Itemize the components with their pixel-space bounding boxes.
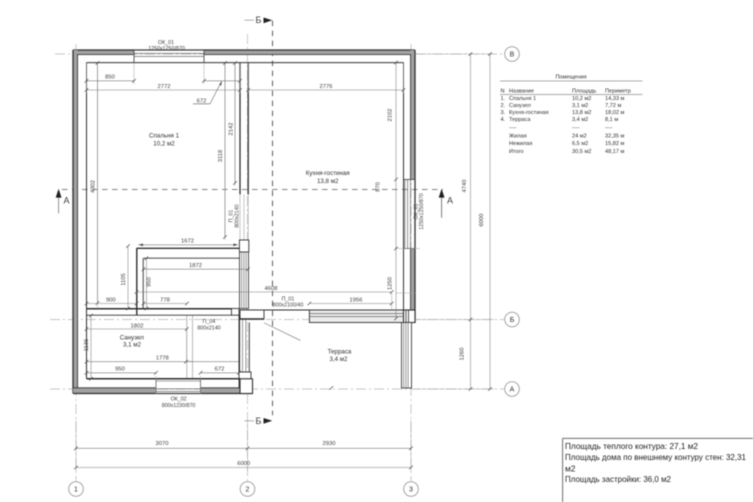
svg-text:672: 672 [197, 99, 207, 105]
svg-text:1.: 1. [501, 96, 506, 102]
svg-text:14,33 м: 14,33 м [605, 96, 625, 102]
svg-text:2776: 2776 [320, 84, 333, 90]
svg-text:1136: 1136 [84, 339, 90, 351]
svg-text:1956: 1956 [350, 298, 363, 304]
svg-text:1260: 1260 [459, 348, 465, 361]
svg-text:672: 672 [215, 367, 225, 373]
svg-text:Санузел: Санузел [509, 103, 531, 109]
svg-text:800х2100/40: 800х2100/40 [273, 303, 304, 309]
svg-text:800х2140: 800х2140 [197, 326, 220, 332]
svg-text:4.: 4. [501, 117, 506, 123]
svg-text:1672: 1672 [181, 239, 194, 245]
svg-text:4608: 4608 [265, 286, 278, 292]
svg-text:15,82 м: 15,82 м [605, 141, 625, 147]
svg-text:900: 900 [106, 297, 116, 303]
svg-text:13,8 м2: 13,8 м2 [572, 110, 591, 116]
svg-text:6000: 6000 [479, 214, 485, 227]
svg-text:3118: 3118 [218, 150, 224, 162]
svg-text:950: 950 [147, 277, 153, 287]
svg-text:Площадь теплого контура: 27,1: Площадь теплого контура: 27,1 м2 [565, 441, 698, 451]
svg-text:Итого: Итого [509, 149, 524, 155]
svg-text:2102: 2102 [388, 109, 394, 122]
svg-text:П_04: П_04 [203, 319, 216, 325]
svg-text:Кухня-гостиная: Кухня-гостиная [306, 170, 350, 177]
svg-text:Кухня-гостиная: Кухня-гостиная [509, 110, 549, 116]
svg-text:Название: Название [509, 89, 534, 95]
svg-text:2142: 2142 [229, 123, 235, 136]
svg-text:4740: 4740 [462, 180, 468, 193]
svg-text:2: 2 [246, 487, 250, 494]
svg-text:8,1 м: 8,1 м [605, 117, 618, 123]
svg-text:3.: 3. [501, 110, 506, 116]
svg-text:3,4 м2: 3,4 м2 [572, 117, 588, 123]
svg-text:32,35 м: 32,35 м [605, 133, 625, 139]
svg-text:Площадь: Площадь [572, 89, 596, 95]
svg-text:870: 870 [375, 182, 381, 192]
svg-text:3,1 м2: 3,1 м2 [123, 341, 142, 348]
svg-text:Спальня 1: Спальня 1 [149, 133, 180, 140]
svg-text:----: ---- [572, 125, 580, 131]
svg-text:2930: 2930 [323, 441, 336, 447]
svg-text:Помещения: Помещения [556, 75, 587, 81]
svg-text:13,8 м2: 13,8 м2 [317, 178, 339, 185]
svg-text:Б: Б [256, 416, 262, 426]
svg-text:Спальня 1: Спальня 1 [509, 96, 536, 102]
svg-text:----: ---- [509, 125, 517, 131]
svg-text:А: А [63, 195, 69, 205]
svg-text:3,1 м2: 3,1 м2 [572, 103, 588, 109]
svg-text:1250: 1250 [388, 277, 394, 290]
svg-text:3070: 3070 [156, 441, 169, 447]
svg-text:1250х1250/870: 1250х1250/870 [148, 46, 185, 52]
svg-text:Терраса: Терраса [328, 349, 352, 356]
svg-text:778: 778 [160, 297, 170, 303]
svg-text:2.: 2. [501, 103, 506, 109]
svg-text:3,4 м2: 3,4 м2 [329, 356, 348, 363]
svg-text:1250х1250/870: 1250х1250/870 [419, 193, 425, 230]
svg-text:1872: 1872 [189, 263, 202, 269]
svg-text:48,17 м: 48,17 м [605, 149, 625, 155]
svg-text:Терраса: Терраса [509, 117, 531, 123]
svg-text:Периметр: Периметр [605, 89, 631, 95]
svg-text:А: А [447, 195, 453, 205]
svg-text:30,5 м2: 30,5 м2 [572, 149, 591, 155]
svg-text:2772: 2772 [158, 84, 171, 90]
svg-text:Жилая: Жилая [509, 133, 527, 139]
svg-text:Нежилая: Нежилая [509, 141, 532, 147]
svg-text:950: 950 [115, 367, 125, 373]
svg-text:Площадь дома по внешнему конту: Площадь дома по внешнему контуру стен: 3… [565, 452, 746, 462]
svg-text:В: В [510, 52, 515, 59]
svg-text:24 м2: 24 м2 [572, 133, 587, 139]
svg-text:18,02 м: 18,02 м [605, 110, 625, 116]
svg-text:10,2 м2: 10,2 м2 [153, 141, 175, 148]
svg-text:1105: 1105 [121, 273, 127, 285]
svg-text:800х2140: 800х2140 [234, 204, 240, 227]
svg-text:6000: 6000 [237, 461, 250, 467]
svg-text:----: ---- [605, 125, 613, 131]
svg-text:Б: Б [256, 15, 262, 25]
svg-text:Б: Б [510, 317, 515, 324]
svg-text:А: А [510, 387, 515, 394]
svg-text:1: 1 [74, 487, 78, 494]
svg-text:10,2 м2: 10,2 м2 [572, 96, 591, 102]
svg-text:м2: м2 [565, 464, 576, 474]
svg-text:850: 850 [105, 75, 115, 81]
svg-text:N: N [501, 89, 505, 95]
svg-text:3: 3 [409, 487, 413, 494]
svg-text:П_01: П_01 [282, 296, 295, 302]
svg-text:Площадь застройки: 36,0 м2: Площадь застройки: 36,0 м2 [565, 474, 671, 484]
svg-text:4302: 4302 [91, 180, 97, 193]
svg-text:7,72 м: 7,72 м [605, 103, 621, 109]
svg-text:1778: 1778 [156, 356, 169, 362]
svg-text:6,5 м2: 6,5 м2 [572, 141, 588, 147]
svg-text:800х1230/870: 800х1230/870 [162, 403, 196, 409]
svg-text:ОК_02: ОК_02 [171, 397, 187, 403]
svg-text:1802: 1802 [131, 324, 144, 330]
